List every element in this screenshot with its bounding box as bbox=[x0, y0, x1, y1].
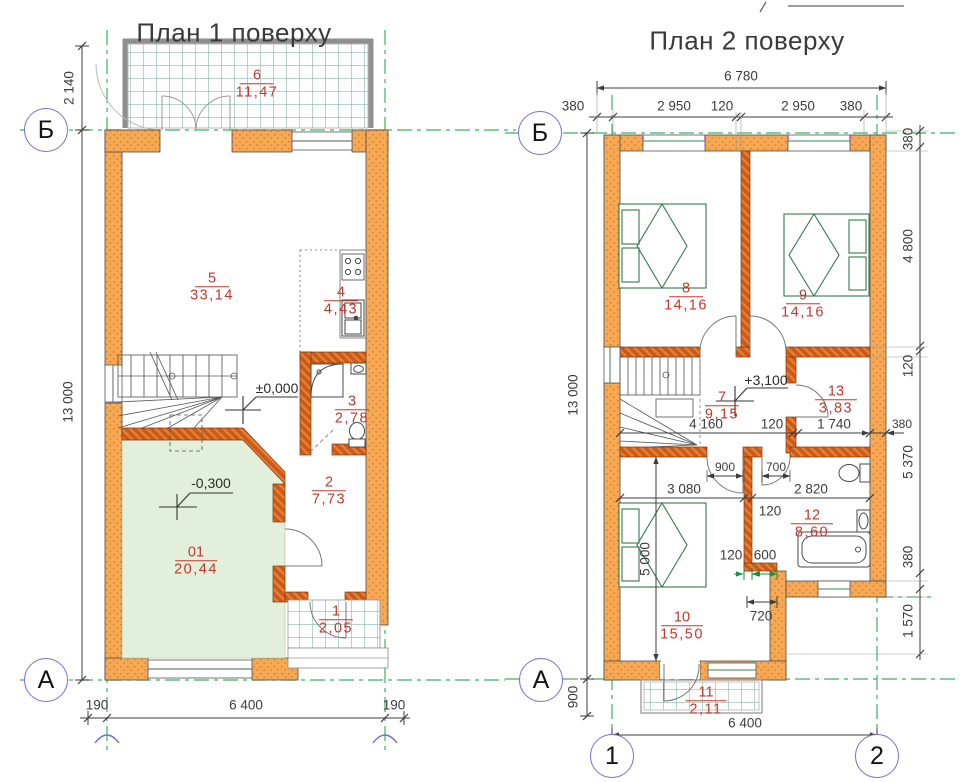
dim-190r: 190 bbox=[383, 698, 406, 713]
dim-6400a: 6 400 bbox=[229, 698, 263, 713]
dim-jog-120: 120 bbox=[720, 548, 743, 563]
dim-120b: 120 bbox=[759, 504, 782, 519]
elevation-minus: -0,300 bbox=[191, 475, 231, 491]
dim-hall-120: 120 bbox=[761, 417, 784, 432]
dim-13000a: 13 000 bbox=[61, 381, 76, 422]
dim-top-2950r: 2 950 bbox=[781, 99, 815, 114]
axis-marker-2: 2 bbox=[855, 734, 899, 778]
dim-2140: 2 140 bbox=[62, 71, 77, 105]
room-label-1: 12,05 bbox=[319, 603, 353, 636]
room-label-5: 533,14 bbox=[190, 270, 234, 303]
room-label-8: 814,16 bbox=[664, 280, 708, 313]
dim-door-900: 900 bbox=[715, 460, 735, 474]
plan1-title: План 1 поверху bbox=[136, 18, 331, 49]
dim-top-120: 120 bbox=[711, 99, 734, 114]
bed-icon bbox=[619, 503, 706, 587]
dim-top-380l: 380 bbox=[562, 99, 585, 114]
dim-6780: 6 780 bbox=[724, 69, 758, 84]
dim-r-4800: 4 800 bbox=[901, 229, 916, 263]
axis-marker-b2: Б bbox=[518, 111, 562, 155]
dim-r-120: 120 bbox=[901, 355, 916, 378]
room-label-3: 32,78 bbox=[335, 393, 369, 426]
dim-wall-380: 380 bbox=[892, 417, 912, 431]
dim-190l: 190 bbox=[86, 698, 109, 713]
room-label-13: 133,83 bbox=[815, 383, 857, 416]
room-label-9: 914,16 bbox=[781, 287, 825, 320]
axis-marker-1: 1 bbox=[590, 734, 634, 778]
axis-marker-a2: А bbox=[519, 658, 563, 702]
dim-6400b: 6 400 bbox=[728, 716, 762, 731]
dim-r-380b: 380 bbox=[901, 546, 916, 569]
room-label-4: 44,43 bbox=[324, 284, 358, 317]
dim-900: 900 bbox=[566, 686, 581, 709]
dim-1740: 1 740 bbox=[817, 417, 851, 432]
dim-top-380r: 380 bbox=[840, 99, 863, 114]
axis-marker-a1: А bbox=[24, 658, 68, 702]
washbasin-icon bbox=[351, 363, 366, 374]
dim-3080: 3 080 bbox=[667, 482, 701, 497]
bed-icon bbox=[784, 214, 869, 296]
toilet-icon bbox=[839, 464, 870, 482]
axis-marker-b1: Б bbox=[24, 108, 68, 152]
dim-r-380a: 380 bbox=[901, 128, 916, 151]
dim-jog-600: 600 bbox=[754, 548, 777, 563]
room-label-10: 1015,50 bbox=[660, 609, 704, 642]
elevation-zero: ±0,000 bbox=[256, 380, 299, 396]
dim-r-1570: 1 570 bbox=[901, 604, 916, 638]
dim-4160: 4 160 bbox=[689, 417, 723, 432]
benchmark-arc-icon bbox=[95, 735, 397, 743]
washbasin-icon bbox=[857, 510, 870, 532]
room-label-2: 27,73 bbox=[312, 474, 346, 507]
floor-plan-sheet: План 1 поверху План 2 поверху Б А Б А 1 … bbox=[0, 0, 961, 782]
dim-r-5370: 5 370 bbox=[901, 445, 916, 479]
room-label-12: 128,60 bbox=[791, 507, 833, 540]
dim-5000: 5 000 bbox=[638, 542, 653, 576]
dim-2820: 2 820 bbox=[794, 482, 828, 497]
elevation-floor2: +3,100 bbox=[744, 372, 787, 388]
dim-top-2950l: 2 950 bbox=[657, 99, 691, 114]
shower-icon bbox=[311, 364, 343, 397]
room-label-01: 0120,44 bbox=[174, 544, 218, 577]
dim-720: 720 bbox=[750, 609, 773, 624]
dim-13000b: 13 000 bbox=[566, 374, 581, 415]
dim-door-700: 700 bbox=[766, 460, 786, 474]
stove-icon bbox=[342, 254, 364, 280]
room-label-6: 611,47 bbox=[236, 67, 279, 100]
plan1-terrace bbox=[96, 41, 371, 130]
sheet-edge-artifact bbox=[760, 2, 904, 12]
bed-icon bbox=[619, 204, 706, 288]
room-label-11: 112,11 bbox=[685, 684, 726, 717]
plan2-title: План 2 поверху bbox=[649, 26, 844, 57]
